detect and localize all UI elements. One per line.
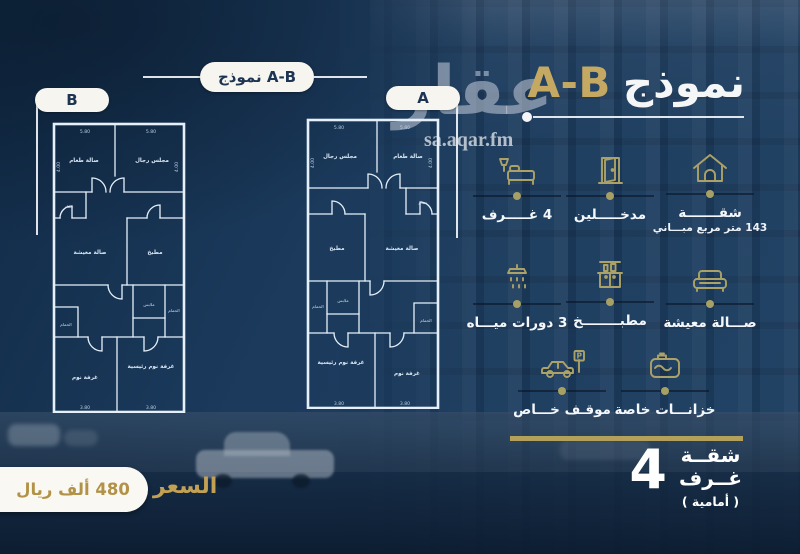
background-car	[64, 430, 98, 446]
svg-text:غرفة نوم: غرفة نوم	[394, 371, 420, 377]
model-pill-row: نموذج A-B	[143, 62, 365, 92]
plan-b-tag: B	[35, 88, 109, 112]
feature-entrances: مدخـــــلين	[554, 144, 666, 223]
shower-icon	[500, 252, 534, 294]
svg-text:صالة طعام: صالة طعام	[393, 154, 423, 160]
kitchen-icon	[592, 250, 628, 292]
feature-connector	[518, 387, 606, 395]
title-underline	[533, 116, 744, 118]
feature-apartment: شقـــــــة 143 متر مربع مبـــاني	[652, 142, 768, 234]
svg-text:مجلس رجال: مجلس رجال	[323, 154, 357, 160]
home-icon	[690, 142, 730, 184]
feature-parking-label: موقـف خـــاص	[513, 402, 611, 418]
svg-text:3.80: 3.80	[146, 405, 156, 411]
floor-plan-a: 5.80 5.80 4.00 4.00 3.80 3.80 مجلس رجال …	[306, 118, 440, 409]
svg-text:3.80: 3.80	[400, 401, 410, 407]
feature-connector	[666, 190, 754, 198]
sofa-icon	[690, 252, 730, 294]
svg-text:صالة معيشة: صالة معيشة	[386, 246, 419, 252]
water-tank-icon	[645, 339, 685, 381]
feature-kitchen: مطبــــــــخ	[554, 250, 666, 329]
door-icon	[593, 144, 627, 186]
svg-text:صالة معيشة: صالة معيشة	[74, 250, 107, 256]
svg-text:4.00: 4.00	[56, 162, 62, 172]
plan-b-tag-line	[36, 100, 38, 235]
svg-text:4.00: 4.00	[174, 162, 180, 172]
svg-text:حمام: حمام	[65, 204, 74, 209]
summary-word-rooms: غــرف	[679, 467, 742, 490]
model-ab-pill: نموذج A-B	[200, 62, 314, 92]
svg-text:الحمام: الحمام	[60, 322, 71, 327]
feature-connector	[566, 298, 654, 306]
feature-living: صـــالة معيشة	[652, 252, 768, 331]
feature-connector	[566, 192, 654, 200]
feature-connector	[666, 300, 754, 308]
title-word: نموذج	[623, 58, 745, 107]
plan-a-tag-line	[456, 98, 458, 238]
title-underline-dot	[522, 112, 532, 122]
summary-word-apartment: شقــة	[681, 444, 741, 467]
svg-text:غرفة نوم رئيسية: غرفة نوم رئيسية	[128, 364, 175, 370]
feature-tanks: خزانـــات خاصة	[609, 339, 721, 418]
feature-connector	[473, 300, 561, 308]
gold-divider	[510, 436, 743, 441]
background-car	[8, 424, 60, 446]
feature-bathrooms-label: 3 دورات ميـــاه	[467, 315, 568, 331]
feature-kitchen-label: مطبــــــــخ	[573, 313, 647, 329]
room-count: 4	[629, 444, 667, 495]
svg-text:مجلس رجال: مجلس رجال	[135, 158, 169, 164]
title-model-code: A-B	[527, 58, 610, 107]
svg-text:5.80: 5.80	[400, 125, 410, 131]
feature-connector	[621, 387, 709, 395]
plan-a-tag: A	[386, 86, 460, 110]
svg-text:ملابس: ملابس	[337, 298, 348, 303]
feature-parking: P موقـف خـــاص	[506, 339, 618, 418]
page-title: نموذج A-B	[527, 58, 745, 107]
pill-line-right	[314, 76, 367, 78]
svg-text:ملابس: ملابس	[143, 302, 154, 307]
svg-text:غرفة نوم: غرفة نوم	[72, 375, 98, 381]
svg-text:5.80: 5.80	[334, 125, 344, 131]
svg-text:صالة طعام: صالة طعام	[69, 158, 99, 164]
feature-tanks-label: خزانـــات خاصة	[614, 402, 715, 418]
car-parking-icon: P	[538, 339, 586, 381]
svg-text:5.80: 5.80	[80, 129, 90, 135]
flyer-canvas: نموذج A-B نموذج A-B عقار sa.aqar.fm B A	[0, 0, 800, 554]
svg-text:3.80: 3.80	[334, 401, 344, 407]
feature-living-label: صـــالة معيشة	[663, 315, 756, 331]
svg-text:مطبخ: مطبخ	[329, 246, 345, 252]
price-pill: 480 ألف ريال	[0, 467, 148, 512]
feature-apartment-sublabel: 143 متر مربع مبـــاني	[653, 222, 767, 234]
svg-text:3.80: 3.80	[80, 405, 90, 411]
svg-text:حمام: حمام	[419, 200, 428, 205]
price-value: 480 ألف ريال	[16, 480, 130, 499]
svg-text:مطبخ: مطبخ	[147, 250, 163, 256]
apartment-summary: 4 شقــة غــرف ( أمامية )	[629, 444, 742, 509]
feature-rooms-label: 4 غـــــرف	[482, 207, 552, 223]
price-label: السعر	[153, 474, 217, 499]
pill-line-left	[143, 76, 200, 78]
floor-plan-b: 5.80 5.80 4.00 4.00 3.80 3.80 صالة طعام …	[52, 122, 186, 413]
svg-text:P: P	[577, 352, 583, 361]
feature-apartment-label: شقـــــــة	[678, 205, 741, 221]
svg-text:غرفة نوم رئيسية: غرفة نوم رئيسية	[318, 360, 365, 366]
summary-note-front: ( أمامية )	[682, 494, 739, 509]
feature-entrances-label: مدخـــــلين	[574, 207, 646, 223]
svg-text:الحمام: الحمام	[420, 318, 431, 323]
svg-text:4.00: 4.00	[428, 158, 434, 168]
svg-text:4.00: 4.00	[310, 158, 316, 168]
bed-icon	[495, 144, 539, 186]
svg-text:الحمام: الحمام	[168, 308, 179, 313]
svg-text:الحمام: الحمام	[312, 304, 323, 309]
feature-connector	[473, 192, 561, 200]
svg-text:5.80: 5.80	[146, 129, 156, 135]
